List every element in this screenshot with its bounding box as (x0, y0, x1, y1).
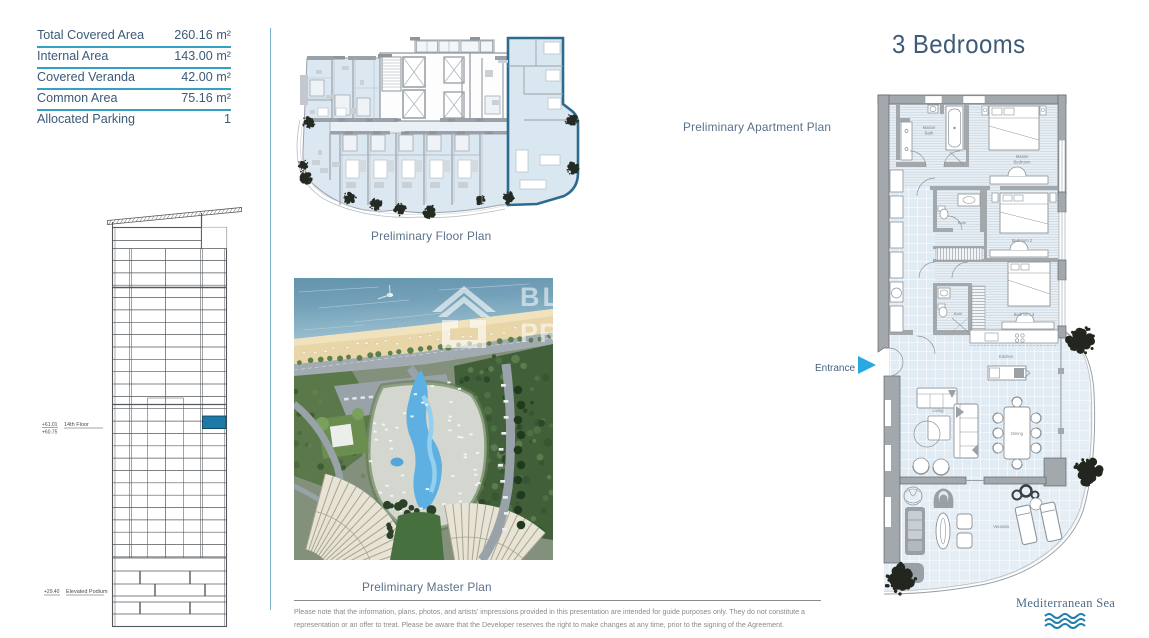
svg-text:Bedroom 3: Bedroom 3 (1014, 312, 1035, 317)
svg-text:Master: Master (1016, 154, 1029, 159)
svg-text:Living: Living (933, 408, 945, 413)
svg-text:Veranda: Veranda (993, 524, 1009, 529)
svg-text:Kitchen: Kitchen (999, 354, 1014, 359)
svg-text:Bedroom: Bedroom (1014, 160, 1032, 165)
svg-text:Elevated Podium: Elevated Podium (66, 589, 108, 595)
svg-text:Dining: Dining (1011, 431, 1024, 436)
svg-text:+61.01: +61.01 (42, 422, 58, 428)
svg-text:+60.75: +60.75 (42, 430, 58, 436)
svg-text:+29.40: +29.40 (44, 589, 60, 595)
svg-text:Master: Master (923, 125, 936, 130)
svg-text:Bath: Bath (954, 311, 962, 316)
svg-text:Bath: Bath (925, 131, 934, 136)
svg-text:14th Floor: 14th Floor (64, 422, 89, 428)
svg-text:Bedroom 2: Bedroom 2 (1012, 238, 1033, 243)
svg-text:Bath: Bath (958, 220, 966, 225)
